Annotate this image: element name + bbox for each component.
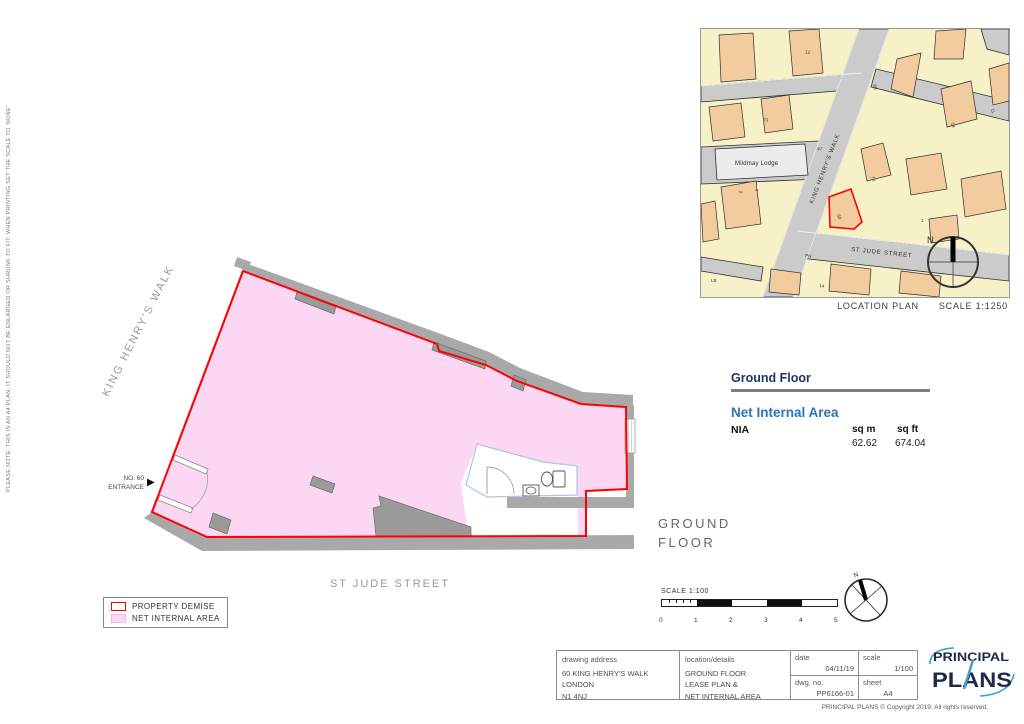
details-lines: GROUND FLOOR LEASE PLAN & NET INTERNAL A… (685, 668, 785, 702)
schedule-sqm-value: 62.62 (852, 438, 877, 449)
legend: PROPERTY DEMISE NET INTERNAL AREA (103, 597, 228, 628)
principal-plans-logo: PRINCIPAL PLANS (920, 644, 1020, 704)
location-plan-title: LOCATION PLAN (837, 301, 919, 311)
dwg-cell: dwg. no. PP6166-01 (791, 676, 859, 700)
schedule-row-label: NIA (731, 424, 749, 436)
demise-swatch (111, 602, 126, 611)
schedule-col-sqft: sq ft (897, 424, 918, 435)
scale-segment (662, 600, 697, 606)
scale-bar-numbers: 0 1 2 3 4 5 (659, 616, 844, 625)
scale-bar-label: SCALE 1:100 (661, 588, 709, 595)
entrance-label: NO. 60 ENTRANCE (96, 474, 144, 493)
ground-floor-line1: GROUND (658, 515, 731, 534)
copyright-note: PRINCIPAL PLANS © Copyright 2019. All ri… (822, 704, 988, 711)
address-label: drawing address (562, 655, 674, 664)
address-line: LONDON (562, 679, 674, 690)
legend-item-demise: PROPERTY DEMISE (111, 602, 220, 611)
scale-tick: 2 (729, 617, 733, 624)
scale-tick: 1 (694, 617, 698, 624)
schedule-subtitle: Net Internal Area (731, 405, 839, 420)
title-block-details-cell: location/details GROUND FLOOR LEASE PLAN… (680, 651, 791, 699)
legend-label: PROPERTY DEMISE (132, 602, 215, 611)
scale-tick: 4 (799, 617, 803, 624)
details-label: location/details (685, 655, 785, 664)
scale-segment (732, 600, 767, 606)
dwg-value: PP6166-01 (795, 689, 854, 698)
scale-tick: 3 (764, 617, 768, 624)
toilet-bowl (542, 472, 553, 486)
ground-floor-line2: FLOOR (658, 534, 731, 553)
scale-segment (802, 600, 837, 606)
scale-cell: scale 1/100 (859, 651, 917, 675)
location-plan-caption: LOCATION PLAN SCALE 1:1250 (700, 301, 1008, 311)
schedule-underline (731, 389, 930, 392)
scale-segment (767, 600, 802, 606)
sheet-cell: sheet A4 (859, 676, 917, 700)
address-line: 60 KING HENRY'S WALK (562, 668, 674, 679)
scale-tick: 0 (659, 617, 663, 624)
legend-label: NET INTERNAL AREA (132, 614, 220, 623)
legend-item-nia: NET INTERNAL AREA (111, 614, 220, 623)
north-arrow-label: N (853, 571, 860, 579)
sheet-value: A4 (863, 689, 913, 698)
address-lines: 60 KING HENRY'S WALK LONDON N1 4NJ (562, 668, 674, 702)
schedule-col-sqm: sq m (852, 424, 875, 435)
logo-line1: PRINCIPAL (933, 650, 1009, 664)
scale-bar (661, 599, 838, 607)
date-label: date (795, 653, 854, 662)
scale-tick: 5 (834, 617, 838, 624)
entrance-arrow-icon: ▶ (147, 477, 155, 488)
map-number: LB (711, 278, 717, 283)
title-block: drawing address 60 KING HENRY'S WALK LON… (556, 650, 918, 700)
details-line: LEASE PLAN & (685, 679, 785, 690)
entrance-label-line2: ENTRANCE (96, 483, 144, 492)
scale-label: scale (863, 653, 913, 662)
sheet-label: sheet (863, 678, 913, 687)
location-plan-drawing: KING HENRY'S WALK ST JUDE STREET Mildmay… (701, 29, 1009, 297)
toilet-cistern (553, 471, 565, 487)
map-north-label: N (927, 235, 934, 245)
lease-plan-page: PLEASE NOTE: THIS IS AN A4 PLAN, IT SHOU… (0, 0, 1024, 724)
ground-floor-label: GROUND FLOOR (658, 515, 731, 553)
map-north-compass (928, 237, 978, 287)
dwg-label: dwg. no. (795, 678, 854, 687)
map-mildmay-lodge-label: Mildmay Lodge (735, 161, 779, 167)
details-line: NET INTERNAL AREA (685, 691, 785, 702)
wc-rear-wall (507, 497, 634, 508)
scale-value: 1/100 (863, 664, 913, 673)
location-plan-scale: SCALE 1:1250 (939, 301, 1008, 311)
title-block-address-cell: drawing address 60 KING HENRY'S WALK LON… (557, 651, 680, 699)
details-line: GROUND FLOOR (685, 668, 785, 679)
nia-swatch (111, 614, 126, 623)
logo-line2: PLANS (932, 669, 1012, 692)
location-plan-map: KING HENRY'S WALK ST JUDE STREET Mildmay… (700, 28, 1010, 298)
schedule-title: Ground Floor (731, 371, 811, 385)
floor-plan-drawing (130, 245, 670, 575)
scale-segment (697, 600, 732, 606)
address-line: N1 4NJ (562, 691, 674, 702)
street-label-st-jude: ST JUDE STREET (300, 578, 480, 590)
title-block-meta: date 04/11/19 scale 1/100 dwg. no. PP616… (791, 651, 917, 699)
entrance-label-line1: NO. 60 (96, 474, 144, 483)
date-cell: date 04/11/19 (791, 651, 859, 675)
top-corner-pier (234, 257, 251, 271)
map-number: PH (805, 253, 812, 259)
print-note: PLEASE NOTE: THIS IS AN A4 PLAN, IT SHOU… (6, 106, 12, 492)
schedule-sqft-value: 674.04 (895, 438, 926, 449)
date-value: 04/11/19 (795, 664, 854, 673)
north-arrow-icon: N (840, 568, 892, 626)
